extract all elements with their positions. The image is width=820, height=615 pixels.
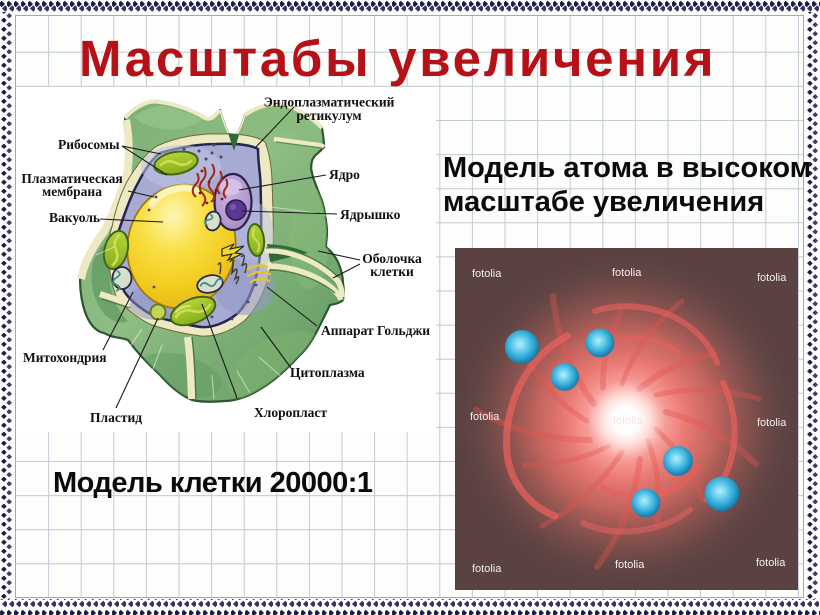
svg-text:fotolia: fotolia — [615, 559, 645, 571]
svg-text:fotolia: fotolia — [756, 557, 786, 569]
svg-text:Аппарат Гольджи: Аппарат Гольджи — [321, 323, 430, 338]
svg-text:клетки: клетки — [370, 264, 414, 279]
svg-text:fotolia: fotolia — [757, 272, 787, 284]
svg-text:Ядро: Ядро — [329, 167, 360, 182]
svg-text:fotolia: fotolia — [757, 417, 787, 429]
svg-text:Пластид: Пластид — [90, 410, 142, 425]
svg-text:Хлоропласт: Хлоропласт — [254, 405, 327, 420]
svg-text:fotolia: fotolia — [612, 267, 642, 279]
svg-text:Ядрышко: Ядрышко — [340, 207, 401, 222]
svg-text:Митохондрия: Митохондрия — [23, 350, 107, 365]
svg-text:Вакуоль: Вакуоль — [49, 210, 100, 225]
svg-text:мембрана: мембрана — [42, 184, 102, 199]
svg-text:Цитоплазма: Цитоплазма — [290, 365, 365, 380]
svg-text:fotolia: fotolia — [613, 415, 643, 427]
svg-text:fotolia: fotolia — [470, 411, 500, 423]
svg-text:Рибосомы: Рибосомы — [58, 137, 120, 152]
svg-text:fotolia: fotolia — [472, 268, 502, 280]
svg-text:fotolia: fotolia — [472, 563, 502, 575]
svg-text:ретикулум: ретикулум — [296, 108, 361, 123]
